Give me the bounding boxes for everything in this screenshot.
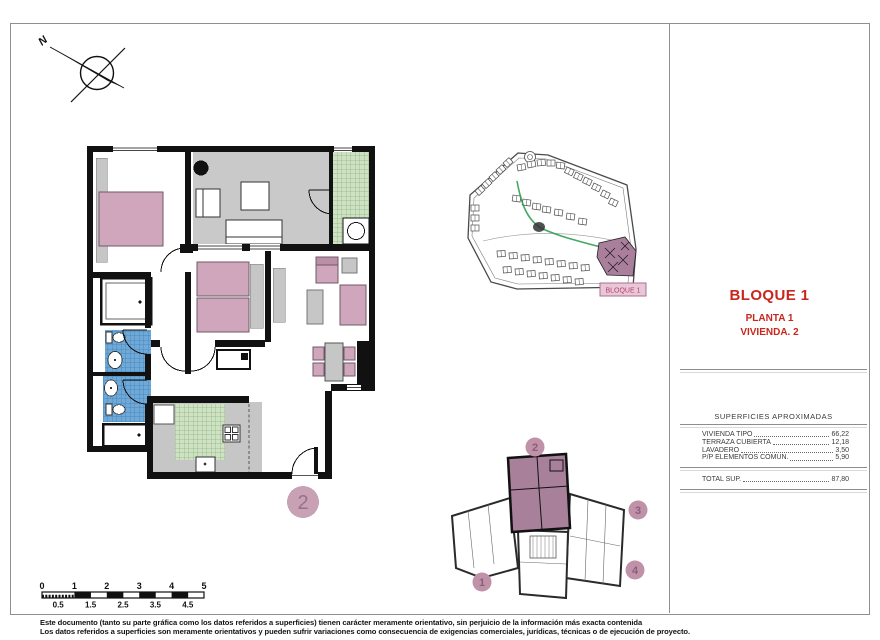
- disclaimer: Este documento (tanto su parte gráfica c…: [40, 619, 830, 637]
- block-title: BLOQUE 1: [670, 287, 869, 304]
- unit-2-badge: 2: [532, 442, 538, 454]
- title-block: BLOQUE 1 PLANTA 1 VIVIENDA. 2: [670, 287, 869, 338]
- nightstand-strip: [250, 264, 263, 328]
- total-value: 87,80: [831, 476, 849, 484]
- washing-machine: [343, 218, 369, 244]
- svg-text:2: 2: [104, 581, 109, 591]
- total-label: TOTAL SUP.: [702, 476, 741, 484]
- unit-number: 2: [297, 492, 308, 514]
- site-block-label: BLOQUE 1: [600, 283, 646, 296]
- terrace-chair: [196, 189, 220, 217]
- row-label: TERRAZA CUBIERTA: [702, 439, 771, 447]
- svg-text:1.5: 1.5: [85, 601, 97, 610]
- unit-4-badge: 4: [632, 565, 639, 577]
- row-value: 12,18: [831, 439, 849, 447]
- svg-text:4: 4: [169, 581, 174, 591]
- total-row: TOTAL SUP. 87,80: [702, 476, 849, 484]
- unit-title: VIVIENDA. 2: [670, 327, 869, 338]
- svg-text:3: 3: [137, 581, 142, 591]
- toilet1: [106, 332, 125, 343]
- toilet2: [106, 404, 125, 415]
- north-label: N: [36, 33, 51, 48]
- unit-number-badge: 2: [287, 486, 319, 518]
- floor-title: PLANTA 1: [670, 313, 869, 324]
- terrace-bench: [226, 220, 282, 244]
- table-row: LAVADERO 3,50: [702, 447, 849, 455]
- svg-text:2.5: 2.5: [117, 601, 129, 610]
- svg-text:0: 0: [39, 581, 44, 591]
- svg-text:3.5: 3.5: [150, 601, 162, 610]
- kitchen-cabinet: [154, 405, 174, 424]
- bed-single-1: [197, 262, 249, 296]
- row-label: LAVADERO: [702, 447, 739, 455]
- sink2: [105, 380, 118, 396]
- svg-text:5: 5: [201, 581, 206, 591]
- panel-rule-3: [680, 467, 867, 471]
- bed-single-2: [197, 298, 249, 332]
- coffee-table: [307, 290, 323, 324]
- terrace-table: [241, 182, 269, 210]
- unit-3-badge: 3: [635, 505, 641, 517]
- hall-wardrobe: [217, 350, 250, 369]
- bathtub1: [101, 278, 151, 324]
- site-plan: BLOQUE 1: [455, 143, 650, 305]
- bathtub2: [103, 424, 151, 446]
- side-table: [342, 258, 357, 273]
- sofa: [340, 285, 366, 325]
- kitchen-sink: [196, 457, 215, 472]
- scale-bar: 0 1 2 3 4 5 0.5 1.5 2.5 3.5 4.5: [34, 580, 218, 610]
- stove: [223, 425, 240, 442]
- dotted-leader: [741, 452, 833, 453]
- dining-set: [313, 343, 355, 381]
- panel-rule-4: [680, 489, 867, 493]
- table-row: VIVIENDA TIPO 66,22: [702, 431, 849, 439]
- sideboard: [273, 268, 285, 322]
- key-plan-highlighted-unit: [508, 454, 570, 532]
- svg-text:0.5: 0.5: [53, 601, 65, 610]
- row-value: 5,90: [835, 454, 849, 462]
- disclaimer-line-2: Los datos referidos a superficies son me…: [40, 628, 830, 637]
- site-center-feature: [533, 222, 545, 232]
- row-value: 66,22: [831, 431, 849, 439]
- scale-minor-labels: 0.5 1.5 2.5 3.5 4.5: [53, 601, 194, 610]
- key-plan: 2 1 3 4: [438, 436, 653, 611]
- dotted-leader: [773, 444, 829, 445]
- site-block-label-text: BLOQUE 1: [605, 288, 640, 295]
- table-row: TERRAZA CUBIERTA 12,18: [702, 439, 849, 447]
- panel-rule-2: [680, 424, 867, 428]
- unit-1-badge: 1: [479, 577, 485, 589]
- areas-table: VIVIENDA TIPO 66,22 TERRAZA CUBIERTA 12,…: [702, 431, 849, 462]
- svg-text:4.5: 4.5: [182, 601, 194, 610]
- floor-plan: 2: [85, 142, 385, 532]
- areas-table-title: SUPERFICIES APROXIMADAS: [680, 412, 867, 421]
- panel-rule-1: [680, 369, 867, 373]
- svg-text:1: 1: [72, 581, 77, 591]
- terrace-plant: [194, 161, 209, 176]
- bed-master: [99, 192, 163, 246]
- row-label: VIVIENDA TIPO: [702, 431, 752, 439]
- dotted-leader: [790, 460, 833, 461]
- north-arrow-icon: N: [36, 30, 136, 115]
- armchair: [316, 257, 338, 283]
- row-value: 3,50: [835, 447, 849, 455]
- dotted-leader: [743, 481, 829, 482]
- table-row: P/P ELEMENTOS COMUN. 5,90: [702, 454, 849, 462]
- dotted-leader: [754, 436, 829, 437]
- plan-sheet-page: N: [0, 0, 880, 640]
- sink1: [108, 352, 122, 369]
- scale-major-labels: 0 1 2 3 4 5: [39, 581, 206, 591]
- row-label: P/P ELEMENTOS COMUN.: [702, 454, 788, 462]
